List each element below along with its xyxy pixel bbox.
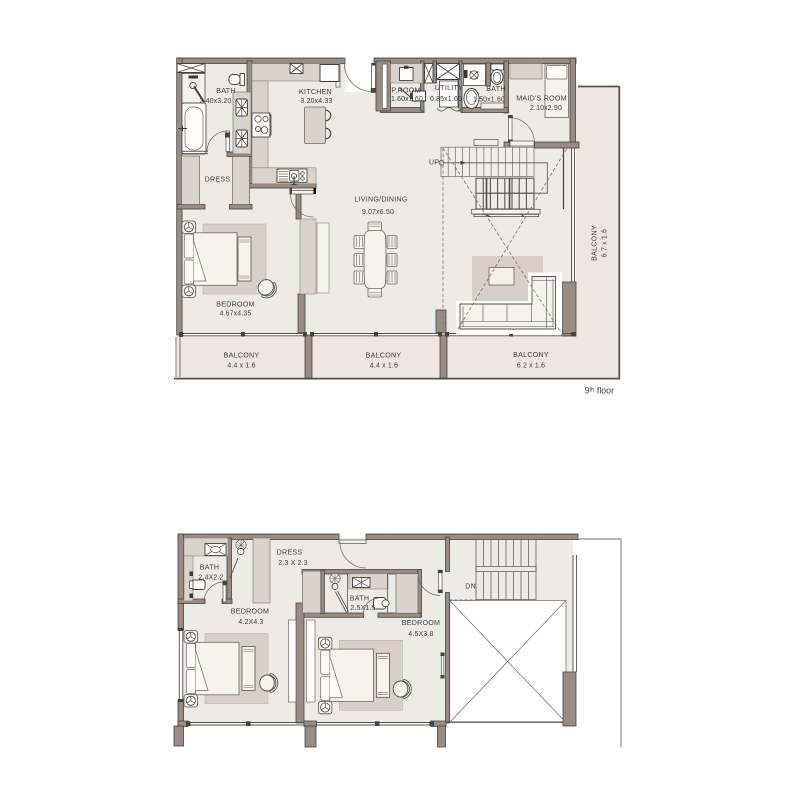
svg-text:1.60x1.60: 1.60x1.60 <box>391 96 423 103</box>
svg-text:DN: DN <box>465 583 476 591</box>
svg-text:BATH: BATH <box>216 87 235 95</box>
svg-text:MAID'S ROOM: MAID'S ROOM <box>516 94 567 102</box>
svg-text:4.67x4.35: 4.67x4.35 <box>219 311 251 318</box>
svg-text:UP: UP <box>429 159 439 167</box>
svg-text:UTILITY: UTILITY <box>435 84 463 92</box>
svg-text:4.5X3.8: 4.5X3.8 <box>408 631 433 638</box>
svg-text:2.10x2.90: 2.10x2.90 <box>530 105 562 112</box>
svg-text:4.4 x 1.6: 4.4 x 1.6 <box>227 363 255 370</box>
svg-text:DRESS: DRESS <box>205 176 231 184</box>
svg-text:6.7 x 1.6: 6.7 x 1.6 <box>602 229 609 257</box>
svg-text:BALCONY: BALCONY <box>591 225 599 261</box>
svg-text:BATH: BATH <box>486 85 505 93</box>
svg-text:1.50x1.60: 1.50x1.60 <box>473 97 505 104</box>
svg-text:BALCONY: BALCONY <box>224 352 260 360</box>
svg-text:BATH: BATH <box>200 564 219 572</box>
svg-text:4.2X4.3: 4.2X4.3 <box>238 619 263 626</box>
svg-text:KITCHEN: KITCHEN <box>299 88 332 96</box>
svg-text:BALCONY: BALCONY <box>366 352 402 360</box>
svg-text:BEDROOM: BEDROOM <box>216 300 254 308</box>
svg-text:DRESS: DRESS <box>277 548 303 556</box>
svg-text:6.2 x 1.6: 6.2 x 1.6 <box>517 363 545 370</box>
svg-text:BEDROOM: BEDROOM <box>402 619 440 627</box>
svg-text:BATH: BATH <box>350 594 369 602</box>
svg-text:2.5X1.5: 2.5X1.5 <box>350 605 375 612</box>
svg-text:LIVING/DINING: LIVING/DINING <box>354 196 407 204</box>
svg-text:0.85x1.60: 0.85x1.60 <box>430 96 462 103</box>
svg-text:BEDROOM: BEDROOM <box>231 607 269 615</box>
svg-text:4.4 x 1.6: 4.4 x 1.6 <box>370 363 398 370</box>
svg-text:3.20x4.33: 3.20x4.33 <box>300 98 332 105</box>
svg-text:2.3 X 2.3: 2.3 X 2.3 <box>278 560 307 567</box>
svg-text:BALCONY: BALCONY <box>513 351 549 359</box>
svg-text:9th floor: 9th floor <box>585 386 615 396</box>
svg-text:P.ROOM: P.ROOM <box>391 87 420 95</box>
svg-text:2.4X2.2: 2.4X2.2 <box>198 574 223 581</box>
svg-text:2.40x3.20: 2.40x3.20 <box>199 98 231 105</box>
svg-text:9.07x6.50: 9.07x6.50 <box>362 209 394 216</box>
